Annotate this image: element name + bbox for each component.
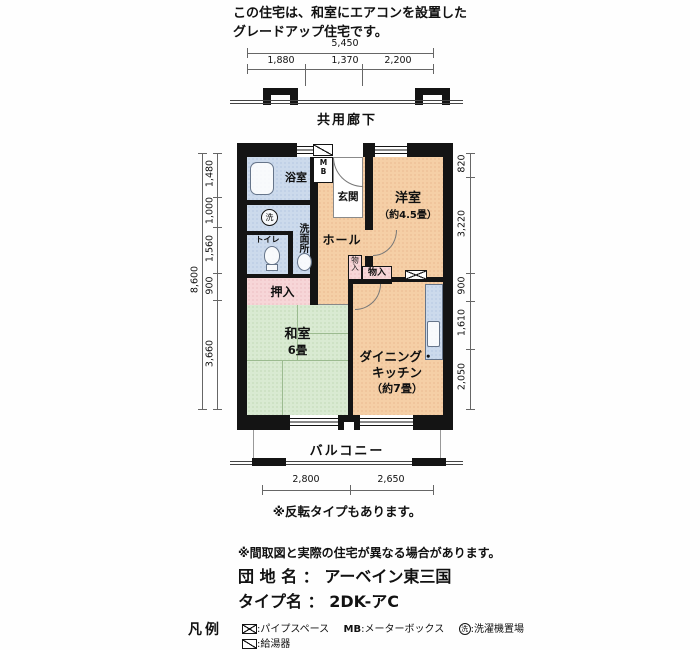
legend-mb-key: MB xyxy=(344,624,362,635)
legend-mb-text: :メーターボックス xyxy=(361,624,444,635)
bathtub-icon xyxy=(250,162,274,195)
wall-left xyxy=(237,143,247,430)
dim-top-seg2: 1,370 xyxy=(315,55,375,66)
dim-bottom-seg2: 2,650 xyxy=(361,474,421,485)
dim-tick xyxy=(433,64,434,74)
laundry-space-icon: 洗 xyxy=(261,209,278,226)
wall-bottom-pier-notch xyxy=(344,422,354,430)
dim-right-seg2: 3,220 xyxy=(457,202,468,246)
dim-tick xyxy=(362,64,363,86)
header-note-line1: この住宅は、和室にエアコンを設置した xyxy=(233,4,467,23)
water-heater-legend-icon xyxy=(242,639,257,649)
kitchen-sink-icon xyxy=(427,321,440,347)
dim-top-total: 5,450 xyxy=(300,38,390,49)
legend-pipe-text: :パイプスペース xyxy=(257,624,329,635)
dim-bottom-seg1: 2,800 xyxy=(276,474,336,485)
japanese-label-block: 和室 6畳 xyxy=(247,323,348,358)
dim-left-seg5: 3,660 xyxy=(205,332,216,376)
balcony-rail-block-right xyxy=(412,458,446,466)
dim-right-seg1: 820 xyxy=(457,142,468,186)
estate-name: アーベイン東三国 xyxy=(324,567,451,586)
meter-box-label: MB xyxy=(318,158,328,176)
laundry-legend-icon: 洗 xyxy=(459,623,471,635)
dim-tick xyxy=(247,64,248,74)
dim-tick xyxy=(305,64,306,86)
type-name-row: タイプ名 ： 2DK-アC xyxy=(238,588,399,612)
dim-line-bottom xyxy=(262,490,433,491)
western-size-label: （約4.5畳） xyxy=(373,206,443,221)
washroom-label: 洗面所 xyxy=(296,209,310,267)
dim-right-seg4: 1,610 xyxy=(457,301,468,345)
dk-label-line2: キッチン xyxy=(351,365,443,381)
bath-label: 浴室 xyxy=(275,169,317,185)
dim-line-top-total xyxy=(247,53,434,54)
dk-size-label: （約7畳） xyxy=(351,381,443,397)
reverse-type-note: ※反転タイプもあります。 xyxy=(237,501,457,520)
dim-tick xyxy=(213,409,222,410)
closet-label: 押入 xyxy=(247,283,318,300)
disclaimer-note: ※間取図と実際の住宅が異なる場合があります。 xyxy=(238,544,500,561)
type-value: 2DK-アC xyxy=(329,592,399,611)
toilet-label: トイレ xyxy=(247,234,288,245)
dk-window xyxy=(360,418,413,427)
legend-row-1: :パイプスペース MB:メーターボックス 洗:洗濯機置場 xyxy=(242,620,524,635)
dim-tick xyxy=(247,48,248,58)
dk-label-line1: ダイニング・ xyxy=(351,349,443,365)
legend-boiler-text: :給湯器 xyxy=(257,639,290,650)
toilet-bowl-icon xyxy=(264,246,280,265)
japanese-label: 和室 xyxy=(247,323,348,342)
storage-vertical-label: 物入 xyxy=(350,256,361,271)
western-label: 洋室 xyxy=(373,187,443,206)
dk-label-block: ダイニング・ キッチン （約7畳） xyxy=(351,349,443,397)
dim-line-right xyxy=(470,153,471,409)
dim-top-seg1: 1,880 xyxy=(251,55,311,66)
wall-bath-wash xyxy=(247,200,318,205)
japanese-room-window xyxy=(290,418,338,427)
pipe-space-legend-icon xyxy=(242,624,257,634)
dim-line-left-total xyxy=(202,153,203,409)
dim-top-seg3: 2,200 xyxy=(368,55,428,66)
type-label: タイプ名 xyxy=(238,592,302,611)
dim-tick xyxy=(466,349,475,350)
western-label-block: 洋室 （約4.5畳） xyxy=(373,187,443,221)
toilet-tank-icon xyxy=(266,264,278,271)
dim-tick xyxy=(433,485,434,495)
entrance-label: 玄関 xyxy=(333,189,363,204)
fusuma-line xyxy=(318,304,348,305)
legend-wash-text: :洗濯機置場 xyxy=(471,624,524,635)
dim-left-seg4: 900 xyxy=(205,264,216,308)
dim-tick xyxy=(466,409,475,410)
legend-row-2: :給湯器 xyxy=(242,635,290,650)
wall-closet-top xyxy=(247,274,318,278)
dim-tick xyxy=(350,485,351,495)
wall-right xyxy=(443,143,453,430)
corridor-label: 共用廊下 xyxy=(297,109,397,128)
type-colon: ： xyxy=(308,592,324,611)
corridor-line xyxy=(230,103,463,104)
balcony-label: バルコニー xyxy=(287,440,407,459)
floorplan-page: この住宅は、和室にエアコンを設置した グレードアップ住宅です。 5,450 1,… xyxy=(0,0,700,650)
estate-name-row: 団 地 名 ： アーベイン東三国 xyxy=(238,563,451,587)
bath-window xyxy=(297,146,313,155)
tatami-line xyxy=(282,360,283,415)
legend-title: 凡例 xyxy=(188,619,222,639)
wall-bottom-right xyxy=(413,415,453,430)
dim-tick xyxy=(433,48,434,58)
balcony-rail-block-left xyxy=(252,458,286,466)
wall-bottom-left xyxy=(237,415,290,430)
hall-label: ホール xyxy=(319,231,365,248)
pipe-space-icon xyxy=(405,270,427,280)
wall-western-left-upper xyxy=(365,157,373,230)
wall-toilet-right xyxy=(288,235,293,274)
header-note: この住宅は、和室にエアコンを設置した グレードアップ住宅です。 xyxy=(233,4,467,42)
dim-line-top-seg xyxy=(247,69,434,70)
estate-colon: ： xyxy=(303,567,319,586)
japanese-size-label: 6畳 xyxy=(247,342,348,358)
dim-tick xyxy=(198,409,207,410)
water-heater-icon xyxy=(313,144,333,156)
floor-plan: MB 物入 物入 洗 浴室 洗面所 トイレ 玄関 ホール 洋室 （約4.5畳） … xyxy=(237,143,453,430)
corridor-line xyxy=(230,100,463,101)
storage-vertical: 物入 xyxy=(348,255,362,280)
estate-label: 団 地 名 xyxy=(238,567,297,586)
western-room-window xyxy=(375,146,407,155)
storage-horizontal: 物入 xyxy=(362,266,392,280)
dim-right-seg5: 2,050 xyxy=(457,355,468,399)
dim-line-left-seg xyxy=(217,153,218,409)
tatami-line xyxy=(247,360,348,361)
wall-entry-pier xyxy=(363,143,375,157)
dim-tick xyxy=(262,485,263,495)
dim-left-total: 8,600 xyxy=(190,258,201,302)
